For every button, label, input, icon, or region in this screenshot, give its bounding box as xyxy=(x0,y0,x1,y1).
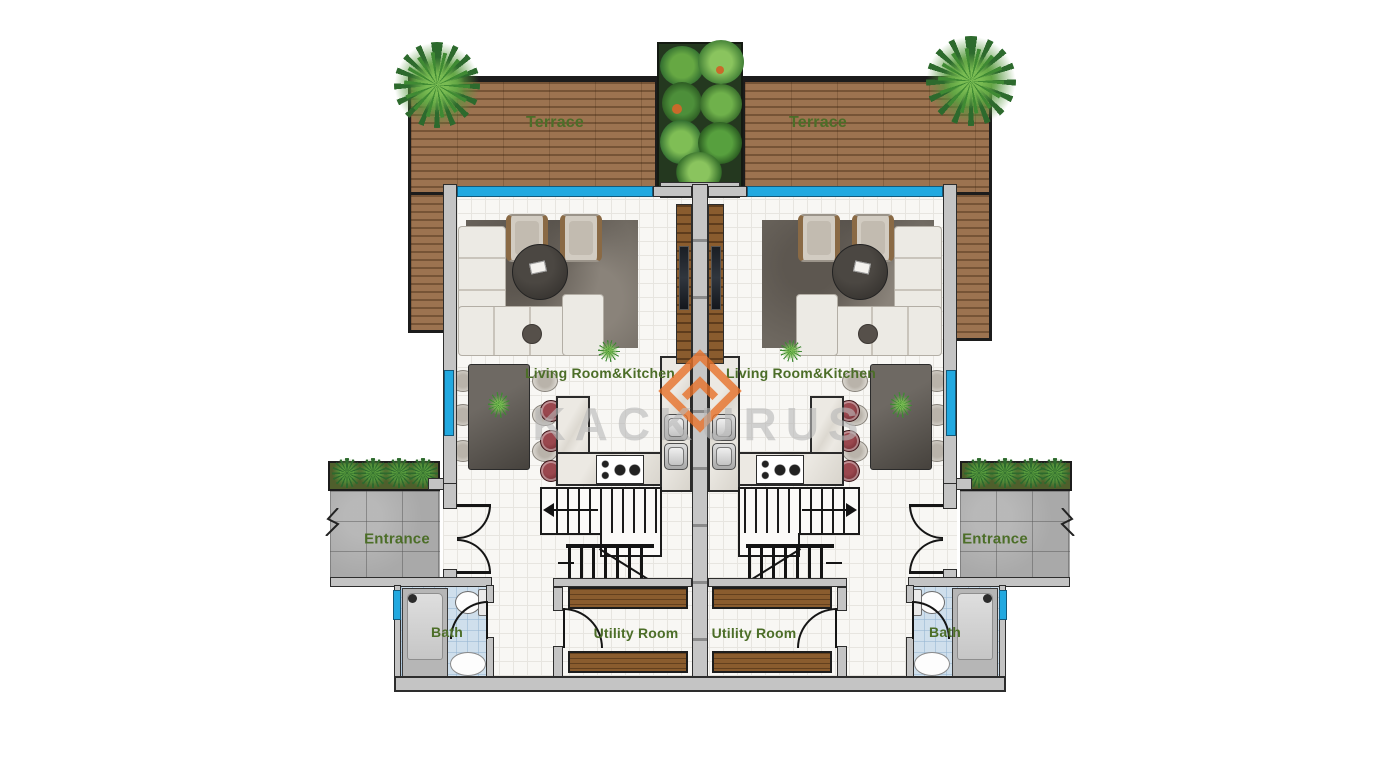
washbasin-right xyxy=(914,652,950,676)
stair-treads xyxy=(556,489,660,533)
green-wall-plant xyxy=(700,84,742,124)
wall-segment xyxy=(906,637,914,680)
wall-segment xyxy=(553,578,692,587)
terrace-right-side-deck xyxy=(955,195,992,341)
shower-head-icon xyxy=(983,594,992,603)
corner-plant-right-icon xyxy=(938,48,1004,114)
wall-segment xyxy=(943,483,957,509)
utility-shelf xyxy=(712,651,832,673)
outer-wall-left xyxy=(443,184,457,490)
planter-plant xyxy=(1040,458,1070,488)
cooktop-left xyxy=(596,455,644,484)
terrace-label-right: Terrace xyxy=(789,114,847,132)
tv-left xyxy=(679,246,689,310)
green-wall-flower-accent xyxy=(716,66,724,74)
stair-arrow-small xyxy=(558,562,574,564)
cooktop-right xyxy=(756,455,804,484)
table-centerpiece-plant xyxy=(488,392,510,418)
wall-segment xyxy=(908,577,1070,587)
floor-plant xyxy=(598,340,620,362)
tv-right xyxy=(711,246,721,310)
terrace-left-side-deck xyxy=(408,195,445,333)
table-centerpiece-plant xyxy=(890,392,912,418)
green-wall-plant xyxy=(698,40,744,84)
utility-label-right: Utility Room xyxy=(712,625,797,641)
bath-window-right xyxy=(999,590,1007,620)
wall-segment xyxy=(443,483,457,509)
window-strip xyxy=(444,370,454,436)
door-leaf xyxy=(457,504,491,507)
door-leaf xyxy=(486,601,488,639)
wall-segment xyxy=(837,587,847,611)
stair-treads xyxy=(744,489,848,533)
wall-segment xyxy=(708,578,847,587)
window-strip xyxy=(457,186,653,197)
door-leaf xyxy=(563,608,565,648)
green-wall-flower-accent xyxy=(672,104,682,114)
utility-shelf xyxy=(568,651,688,673)
stair-direction-arrow xyxy=(552,509,598,511)
wall-break-mark-right xyxy=(1058,508,1076,536)
watermark-text: KACKURUS xyxy=(532,397,867,451)
entrance-label-left: Entrance xyxy=(364,531,430,548)
armchair xyxy=(560,214,602,262)
wall-stub xyxy=(653,186,692,197)
door-leaf xyxy=(457,571,491,574)
wall-stub xyxy=(708,186,747,197)
stair-arrow-small xyxy=(826,562,842,564)
door-leaf xyxy=(912,601,914,639)
window-strip xyxy=(747,186,943,197)
door-leaf xyxy=(909,571,943,574)
floor-plant xyxy=(780,340,802,362)
armchair xyxy=(798,214,840,262)
door-leaf xyxy=(835,608,837,648)
stair-direction-arrow xyxy=(846,503,857,517)
stairs-upper-right xyxy=(738,487,860,535)
shower-head-icon xyxy=(408,594,417,603)
stair-balusters xyxy=(568,548,652,582)
floor-plan: Terrace Terrace Living Room&Kitchen Livi… xyxy=(0,0,1400,780)
washbasin-left xyxy=(450,652,486,676)
bath-label-left: Bath xyxy=(431,624,463,640)
bottom-exterior-wall xyxy=(394,676,1006,692)
chaise-right xyxy=(796,294,838,356)
living-label-right: Living Room&Kitchen xyxy=(726,365,876,381)
stairs-upper-left xyxy=(540,487,662,535)
wall-segment xyxy=(553,587,563,611)
stair-direction-arrow xyxy=(802,509,848,511)
wall-segment xyxy=(486,637,494,680)
utility-shelf xyxy=(568,587,688,609)
door-leaf xyxy=(909,504,943,507)
pouf xyxy=(522,324,542,344)
utility-label-left: Utility Room xyxy=(594,625,679,641)
outer-wall-right xyxy=(943,184,957,490)
bath-label-right: Bath xyxy=(929,624,961,640)
utility-shelf xyxy=(712,587,832,609)
living-label-left: Living Room&Kitchen xyxy=(525,365,675,381)
wall-segment xyxy=(553,646,563,680)
stair-direction-arrow xyxy=(543,503,554,517)
wall-break-mark-left xyxy=(324,508,342,536)
wall-segment xyxy=(330,577,492,587)
window-strip xyxy=(946,370,956,436)
wall-stub xyxy=(956,478,972,490)
pouf xyxy=(858,324,878,344)
wall-segment xyxy=(837,646,847,680)
corner-plant-left-icon xyxy=(404,52,470,118)
bath-window-left xyxy=(393,590,401,620)
green-wall-plant xyxy=(662,82,702,124)
entrance-label-right: Entrance xyxy=(962,531,1028,548)
terrace-label-left: Terrace xyxy=(526,114,584,132)
wall-stub xyxy=(428,478,444,490)
